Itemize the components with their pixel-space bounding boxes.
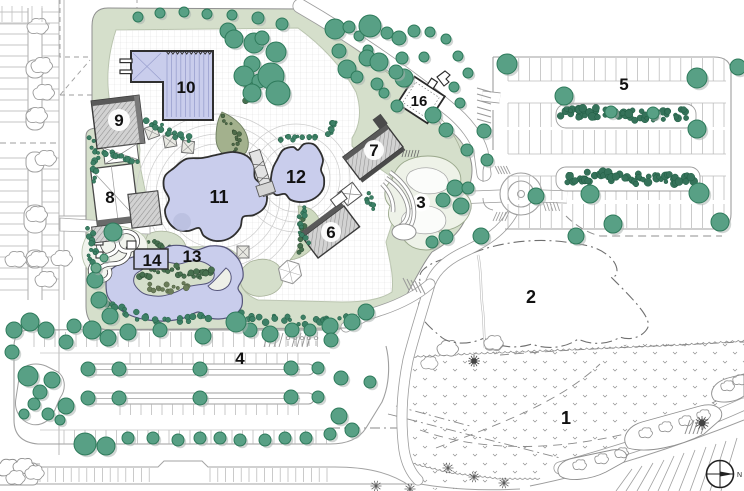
svg-text:14: 14 xyxy=(143,251,162,270)
svg-text:13: 13 xyxy=(183,247,202,266)
svg-text:4: 4 xyxy=(235,349,245,368)
svg-text:16: 16 xyxy=(411,93,428,110)
svg-text:3: 3 xyxy=(416,193,425,212)
svg-text:10: 10 xyxy=(177,78,196,97)
svg-text:1: 1 xyxy=(561,408,571,428)
svg-text:9: 9 xyxy=(114,111,123,130)
svg-text:5: 5 xyxy=(619,75,628,94)
svg-text:11: 11 xyxy=(209,187,228,207)
svg-text:7: 7 xyxy=(369,141,378,160)
svg-text:8: 8 xyxy=(105,188,114,207)
svg-text:N: N xyxy=(737,472,742,479)
svg-text:2: 2 xyxy=(526,287,536,307)
svg-text:12: 12 xyxy=(286,167,306,187)
svg-text:6: 6 xyxy=(326,223,335,242)
